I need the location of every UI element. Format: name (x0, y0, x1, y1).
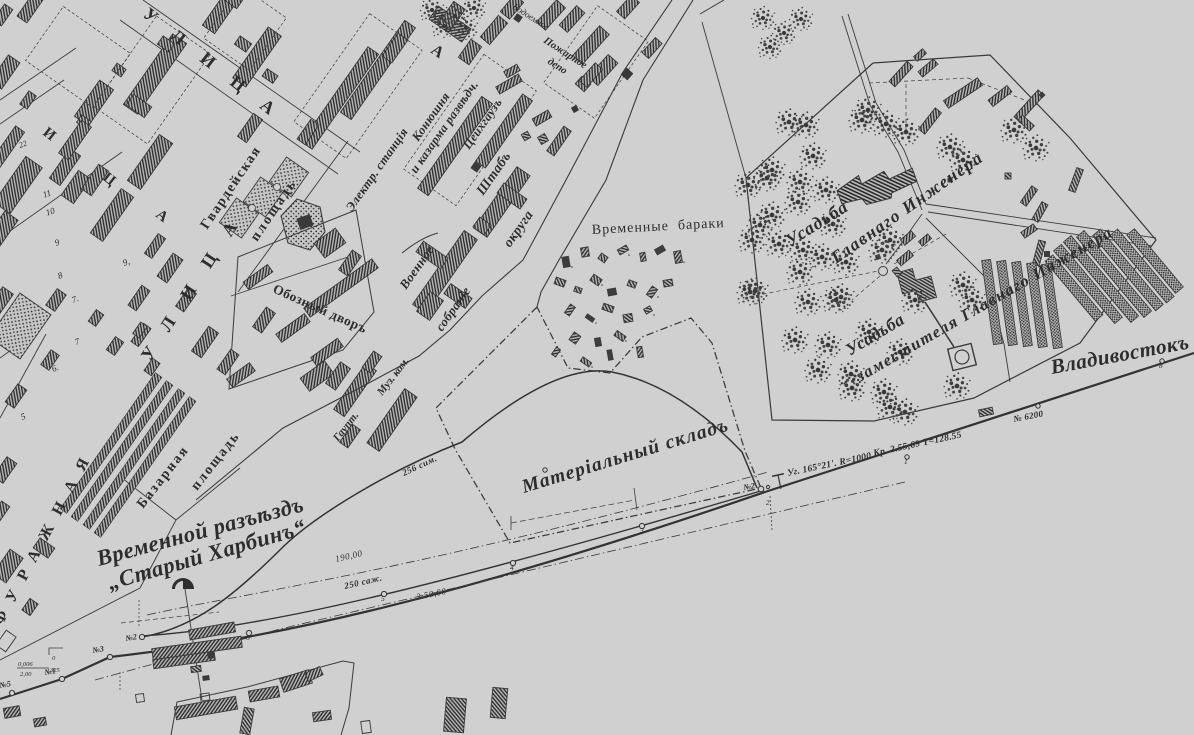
svg-text:3: 3 (639, 526, 644, 535)
svg-text:1: 1 (904, 457, 908, 466)
svg-text:0,006: 0,006 (18, 661, 33, 668)
svg-text:2: 2 (766, 499, 770, 507)
svg-text:325: 325 (49, 667, 61, 674)
svg-text:4: 4 (510, 563, 514, 572)
svg-text:6: 6 (246, 633, 250, 642)
svg-text:5: 5 (381, 594, 385, 603)
svg-text:8: 8 (1159, 361, 1163, 370)
svg-text:2,00: 2,00 (20, 671, 32, 678)
